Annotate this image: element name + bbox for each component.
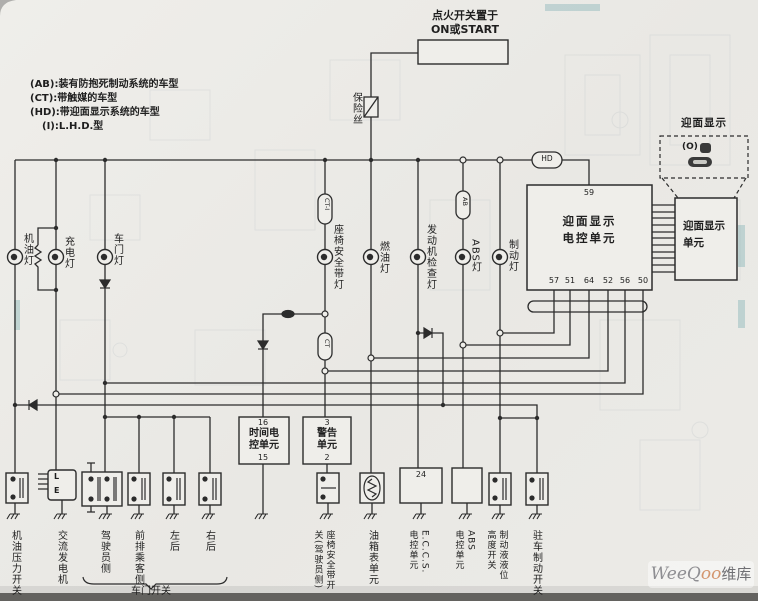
eccs-label-col2: 电控单元 — [407, 530, 416, 570]
alternator-terminal-e: E — [54, 487, 59, 495]
fuse-label: 保险丝 — [350, 92, 361, 125]
page-bottom-strip — [0, 593, 758, 601]
wire-fuel — [371, 160, 372, 514]
charge-lamp-label: 充电灯 — [62, 236, 73, 269]
hud-unit-label-line2: 单元 — [683, 238, 733, 249]
door-switch-left-rear-box — [163, 473, 185, 505]
ecu-pin-52: 52 — [599, 277, 617, 285]
wire-pin50 — [56, 290, 643, 394]
door-switch-group-label: 车门开关 — [119, 587, 183, 598]
ecu-pin-51: 51 — [561, 277, 579, 285]
ecu-pin-59: 59 — [580, 189, 598, 197]
abs-lamp-label: ABS灯 — [469, 239, 480, 273]
page-corner — [0, 0, 16, 16]
alternator-label: 交流发电机 — [55, 530, 66, 585]
fuse-symbol — [364, 97, 378, 117]
oil-pressure-switch-box — [6, 473, 28, 503]
timer-pin-16: 16 — [254, 419, 272, 427]
ecu-pin-64: 64 — [580, 277, 598, 285]
door-lamp-diode — [100, 280, 110, 288]
watermark-part2: oo — [701, 564, 721, 584]
wiring-diagram-page: (AB):装有防抱死制动系统的车型 (CT):带触媒的车型 (HD):带迎面显示… — [0, 0, 758, 601]
door-right-rear-label: 右后 — [203, 530, 214, 552]
seat-belt-switch-label-col2: 关(驾驶员侧) — [312, 530, 321, 589]
brake-fluid-switch-label-col2: 高度开关 — [485, 530, 494, 570]
watermark: WeeQoo维库 — [648, 561, 754, 588]
alternator-terminal-l: L — [54, 473, 59, 481]
ecu-pin-50: 50 — [634, 277, 652, 285]
warning-pin-2: 2 — [318, 454, 336, 462]
door-front-passenger-label: 前排乘客侧 — [132, 530, 143, 585]
eccs-label-col1: E.C.C.S. — [419, 530, 428, 573]
door-lamp-label: 车门灯 — [111, 233, 122, 266]
connector-ct-label: CT — [320, 339, 330, 348]
abs-unit-box — [452, 468, 482, 503]
legend-line-3: (HD):带迎面显示系统的车型 — [30, 108, 160, 119]
page-bottom-shade — [0, 586, 758, 594]
oil-line-diode — [29, 400, 37, 410]
wire-door — [87, 160, 210, 514]
fuel-lamp-label: 燃油灯 — [377, 241, 388, 274]
oil-pressure-switch-label: 机油压力开关 — [9, 530, 20, 596]
timer-branch-diode — [258, 341, 268, 349]
hud-display-icon-text: (O) — [682, 143, 698, 152]
watermark-part1: WeeQ — [651, 564, 701, 584]
harness-band — [528, 301, 647, 312]
wire-pin56 — [105, 290, 625, 383]
hud-unit-label-line1: 迎面显示 — [683, 221, 733, 232]
connector-ct-i-label: CT-I — [320, 198, 330, 210]
hud-display-label: 迎面显示 — [660, 118, 748, 129]
abs-ecu-label-col1: ABS — [465, 530, 474, 551]
door-switch-front-passenger-box — [128, 473, 150, 505]
ground-symbols — [7, 514, 542, 519]
seatbelt-lamp-label: 座椅安全带灯 — [331, 224, 342, 290]
seat-belt-switch-label-col1: 座椅安全带开 — [324, 530, 333, 590]
timer-pin-15: 15 — [254, 454, 272, 462]
warning-label-line1: 警告 — [303, 429, 351, 440]
eccs-branch-diode — [424, 328, 432, 338]
legend-line-1: (AB):装有防抱死制动系统的车型 — [30, 80, 179, 91]
ecu-pin-56: 56 — [616, 277, 634, 285]
brake-lamp-label: 制动灯 — [506, 239, 517, 272]
abs-ecu-label-col2: 电控单元 — [453, 530, 462, 570]
timer-branch-connector — [282, 311, 294, 318]
connector-hd-label: HD — [537, 155, 557, 163]
fuel-gauge-unit-label: 油箱表单元 — [366, 530, 377, 585]
door-left-rear-label: 左后 — [167, 530, 178, 552]
ignition-label-line2: ON或START — [415, 24, 515, 36]
wire-pin64 — [371, 290, 589, 358]
legend-line-2: (CT):带触媒的车型 — [30, 94, 117, 105]
connector-ab-label: AB — [458, 197, 468, 206]
door-switch-right-rear-box — [199, 473, 221, 505]
timer-label-line1: 时间电 — [241, 429, 287, 440]
wire-pin52 — [325, 290, 608, 371]
brake-fluid-switch-box — [489, 473, 511, 505]
watermark-part3: 维库 — [721, 565, 751, 583]
ecu-label-line1: 迎面显示 — [527, 215, 652, 227]
warning-pin-3: 3 — [318, 419, 336, 427]
ecu-label-line2: 电控单元 — [527, 232, 652, 244]
brake-fluid-switch-label-col1: 制动液液位 — [497, 530, 506, 580]
ignition-switch-box — [418, 40, 508, 64]
oil-lamp-label: 机油灯 — [21, 233, 32, 266]
hud-ribbon — [652, 205, 675, 272]
timer-label-line2: 控单元 — [241, 441, 287, 452]
parking-brake-switch-box — [526, 473, 548, 505]
eccs-pin-24: 24 — [412, 471, 430, 479]
warning-label-line2: 单元 — [303, 441, 351, 452]
wire-main-bus — [15, 160, 589, 185]
ignition-label-line1: 点火开关置于 — [415, 10, 515, 22]
engine-check-lamp-label: 发动机检查灯 — [424, 224, 435, 290]
legend-line-4: (I):L.H.D.型 — [42, 122, 103, 133]
wire-charge — [35, 160, 62, 514]
alternator-box — [48, 470, 76, 500]
parking-brake-switch-label: 驻车制动开关 — [530, 530, 541, 596]
door-driver-label: 驾驶员侧 — [98, 530, 109, 574]
